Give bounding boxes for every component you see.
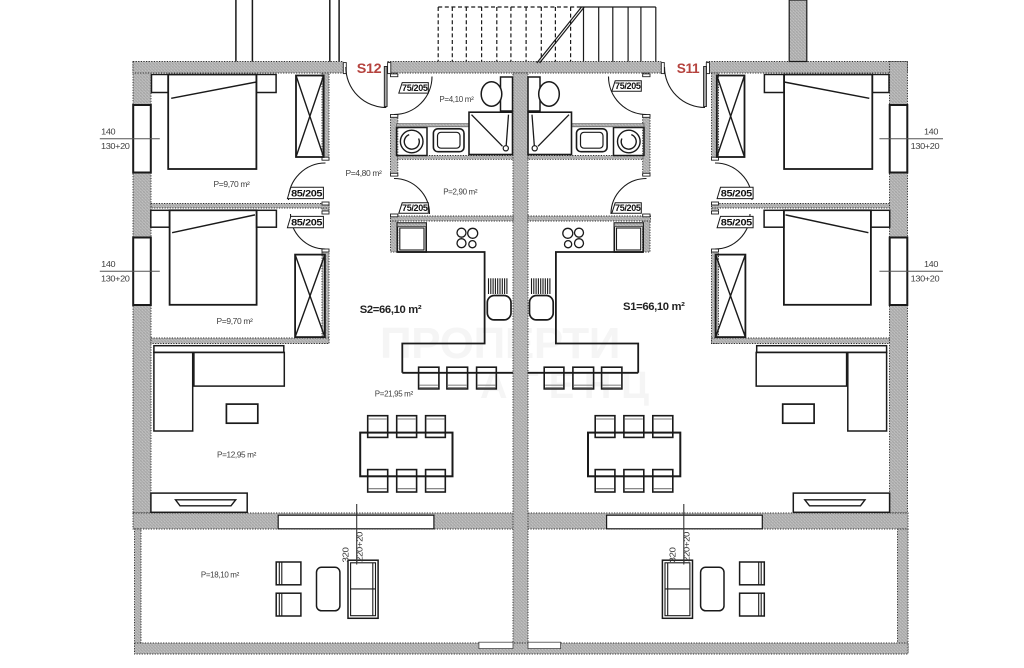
svg-text:P=2,90 m²: P=2,90 m² <box>443 188 478 197</box>
svg-text:P=9,70 m²: P=9,70 m² <box>217 317 254 326</box>
svg-text:75/205: 75/205 <box>402 83 428 93</box>
svg-text:220+20: 220+20 <box>356 531 365 562</box>
svg-text:140: 140 <box>924 128 939 137</box>
svg-text:P=4,10 m²: P=4,10 m² <box>439 95 474 104</box>
svg-text:S11: S11 <box>677 61 700 76</box>
svg-text:130+20: 130+20 <box>101 275 131 284</box>
svg-text:75/205: 75/205 <box>615 203 641 213</box>
svg-text:S12: S12 <box>357 61 382 76</box>
svg-text:85/205: 85/205 <box>291 218 323 229</box>
svg-text:140: 140 <box>924 260 939 269</box>
svg-text:130+20: 130+20 <box>911 142 941 151</box>
svg-text:130+20: 130+20 <box>911 275 941 284</box>
svg-text:P=18,10 m²: P=18,10 m² <box>201 571 240 580</box>
svg-text:P=12,95 m²: P=12,95 m² <box>217 451 257 460</box>
svg-text:75/205: 75/205 <box>402 203 428 213</box>
svg-text:320: 320 <box>669 546 678 562</box>
svg-text:P=4,80 m²: P=4,80 m² <box>346 169 383 178</box>
svg-text:140: 140 <box>101 128 116 137</box>
svg-text:85/205: 85/205 <box>291 188 323 199</box>
svg-text:P=21,95 m²: P=21,95 m² <box>375 390 414 399</box>
svg-text:P=9,70 m²: P=9,70 m² <box>214 180 251 189</box>
svg-text:S1=66,10 m²: S1=66,10 m² <box>623 301 685 313</box>
svg-text:75/205: 75/205 <box>615 81 641 91</box>
svg-text:320: 320 <box>341 546 350 562</box>
svg-text:85/205: 85/205 <box>721 218 753 229</box>
svg-text:220+20: 220+20 <box>683 531 692 562</box>
svg-text:130+20: 130+20 <box>101 142 131 151</box>
svg-text:S2=66,10 m²: S2=66,10 m² <box>360 304 422 316</box>
svg-text:140: 140 <box>101 260 116 269</box>
svg-text:85/205: 85/205 <box>721 188 753 199</box>
